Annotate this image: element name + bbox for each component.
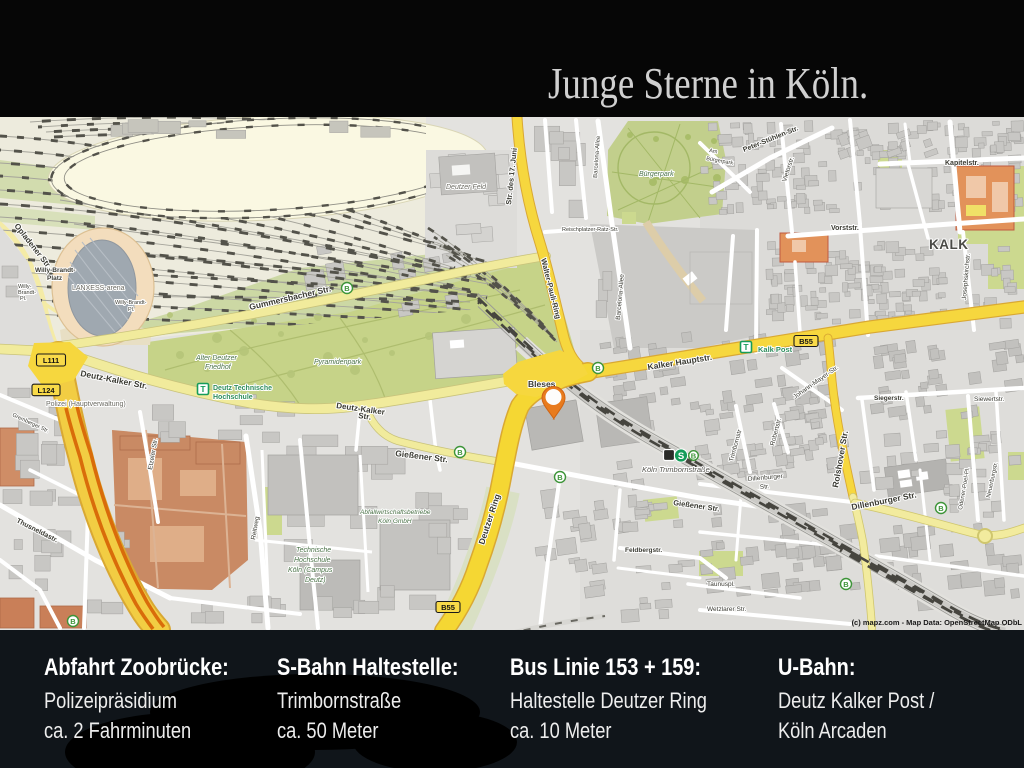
svg-text:Pl.: Pl. xyxy=(20,296,27,302)
svg-text:B55: B55 xyxy=(799,337,813,346)
svg-text:Deutzer Feld: Deutzer Feld xyxy=(446,184,487,191)
svg-text:Köln Trimbornstraße: Köln Trimbornstraße xyxy=(642,465,710,474)
svg-text:Alter Deutzer: Alter Deutzer xyxy=(195,355,238,362)
svg-text:Siegerstr.: Siegerstr. xyxy=(874,395,904,402)
svg-text:B: B xyxy=(344,284,350,293)
svg-text:B: B xyxy=(457,448,463,457)
svg-text:T: T xyxy=(200,384,206,394)
svg-text:Willy-Brandt-: Willy-Brandt- xyxy=(115,300,147,306)
svg-text:Hochschule: Hochschule xyxy=(294,557,331,564)
svg-text:Köln GmbH: Köln GmbH xyxy=(378,518,412,525)
svg-text:Abfallwirtschaftsbetriebe: Abfallwirtschaftsbetriebe xyxy=(359,509,431,516)
svg-text:Köln (Campus: Köln (Campus xyxy=(288,567,333,574)
svg-text:Siewertstr.: Siewertstr. xyxy=(974,396,1005,403)
svg-text:KALK: KALK xyxy=(929,237,969,252)
svg-text:B: B xyxy=(557,473,563,482)
svg-text:Technische: Technische xyxy=(296,547,331,554)
svg-text:Deutz): Deutz) xyxy=(305,577,326,584)
svg-text:Pyramidenpark: Pyramidenpark xyxy=(314,359,362,366)
svg-text:Str.: Str. xyxy=(760,483,771,491)
svg-text:Willy-Brandt-: Willy-Brandt- xyxy=(35,267,75,274)
svg-text:B: B xyxy=(595,364,601,373)
svg-text:Friedhof: Friedhof xyxy=(205,364,232,371)
svg-text:Deutz Technische: Deutz Technische xyxy=(213,385,272,392)
svg-text:S: S xyxy=(678,451,684,462)
svg-text:LANXESS-arena: LANXESS-arena xyxy=(72,285,125,292)
svg-text:Vorststr.: Vorststr. xyxy=(831,225,859,232)
svg-text:Pl.: Pl. xyxy=(128,307,135,313)
svg-text:Kalk Post: Kalk Post xyxy=(758,345,793,354)
svg-text:B: B xyxy=(70,617,76,626)
svg-text:Platz: Platz xyxy=(47,275,63,282)
svg-text:Feldbergstr.: Feldbergstr. xyxy=(625,547,662,554)
svg-text:Str.: Str. xyxy=(358,411,372,422)
svg-text:Hochschule: Hochschule xyxy=(213,394,253,401)
svg-text:T: T xyxy=(743,342,749,352)
svg-text:Reischplatzer-Ratz-Str.: Reischplatzer-Ratz-Str. xyxy=(562,227,619,233)
svg-text:B: B xyxy=(691,451,697,460)
svg-text:B55: B55 xyxy=(441,603,455,612)
svg-text:Polizei (Hauptverwaltung): Polizei (Hauptverwaltung) xyxy=(46,401,126,408)
svg-text:Wetzlarer Str.: Wetzlarer Str. xyxy=(707,606,746,613)
svg-text:Bürgerpark: Bürgerpark xyxy=(639,171,674,178)
svg-text:Kapitelstr.: Kapitelstr. xyxy=(945,160,979,167)
svg-text:Taunuspl.: Taunuspl. xyxy=(707,581,735,588)
svg-text:B: B xyxy=(843,580,849,589)
svg-text:L111: L111 xyxy=(43,356,59,365)
svg-text:L124: L124 xyxy=(37,386,55,395)
svg-text:(c) mapz.com - Map Data: OpenS: (c) mapz.com - Map Data: OpenStreetMap O… xyxy=(852,618,1023,627)
svg-text:B: B xyxy=(938,504,944,513)
